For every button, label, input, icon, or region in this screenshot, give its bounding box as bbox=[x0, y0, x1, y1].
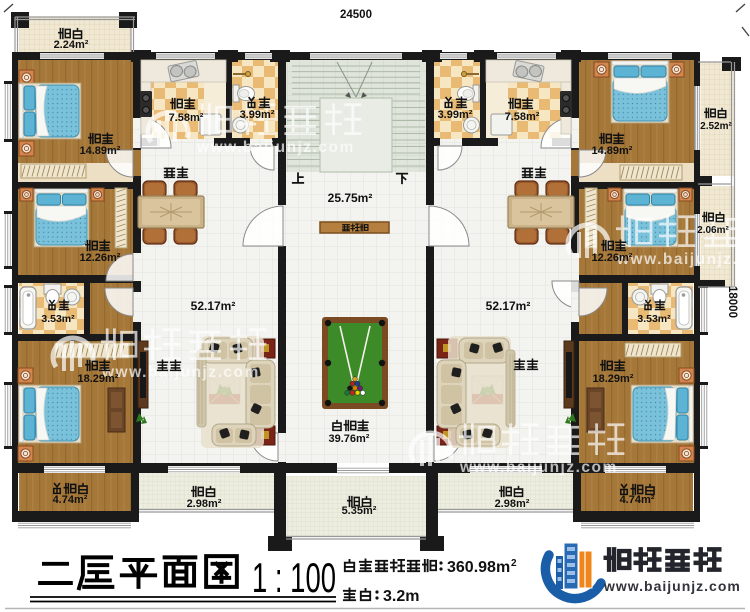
svg-text:2.24m²: 2.24m² bbox=[54, 39, 89, 51]
svg-text:www.baijunjz.com: www.baijunjz.com bbox=[603, 578, 741, 594]
svg-text:3.2m: 3.2m bbox=[383, 588, 419, 605]
svg-text:2.98m²: 2.98m² bbox=[187, 498, 222, 510]
svg-text:3.53m²: 3.53m² bbox=[637, 313, 671, 325]
svg-text:12.26m²: 12.26m² bbox=[592, 252, 633, 264]
svg-text:360.98m: 360.98m bbox=[447, 559, 510, 576]
svg-text:18.29m²: 18.29m² bbox=[593, 373, 634, 385]
svg-text:2.52m²: 2.52m² bbox=[700, 121, 732, 132]
svg-text:25.75m²: 25.75m² bbox=[328, 191, 373, 205]
svg-text:www.baijunjz.com: www.baijunjz.com bbox=[101, 364, 260, 381]
svg-text:7.58m²: 7.58m² bbox=[505, 111, 540, 123]
svg-text:24500: 24500 bbox=[340, 9, 372, 21]
svg-text:www.baijunjz.com: www.baijunjz.com bbox=[616, 251, 750, 268]
svg-text:14.89m²: 14.89m² bbox=[592, 145, 633, 157]
svg-text:12.26m²: 12.26m² bbox=[80, 252, 121, 264]
svg-text:5.35m²: 5.35m² bbox=[342, 505, 377, 517]
svg-text:39.76m²: 39.76m² bbox=[329, 433, 370, 445]
svg-text:52.17m²: 52.17m² bbox=[486, 299, 531, 313]
svg-text:18000: 18000 bbox=[726, 286, 738, 318]
svg-text:www.baijunjz.com: www.baijunjz.com bbox=[196, 139, 355, 156]
svg-text:52.17m²: 52.17m² bbox=[191, 299, 236, 313]
svg-text:3.99m²: 3.99m² bbox=[438, 109, 473, 121]
svg-text:18.29m²: 18.29m² bbox=[78, 373, 119, 385]
svg-text:4.74m²: 4.74m² bbox=[620, 494, 655, 506]
svg-text:4.74m²: 4.74m² bbox=[53, 494, 88, 506]
svg-text:2.06m²: 2.06m² bbox=[697, 225, 729, 236]
svg-text:2.98m²: 2.98m² bbox=[495, 498, 530, 510]
svg-text:14.89m²: 14.89m² bbox=[80, 145, 121, 157]
svg-text:www.baijunjz.com: www.baijunjz.com bbox=[459, 459, 618, 476]
svg-text:3.53m²: 3.53m² bbox=[41, 313, 75, 325]
svg-text:1 : 100: 1 : 100 bbox=[252, 554, 336, 601]
svg-text:3.99m²: 3.99m² bbox=[240, 109, 275, 121]
svg-text:2: 2 bbox=[511, 558, 517, 569]
svg-text:7.58m²: 7.58m² bbox=[169, 112, 204, 124]
